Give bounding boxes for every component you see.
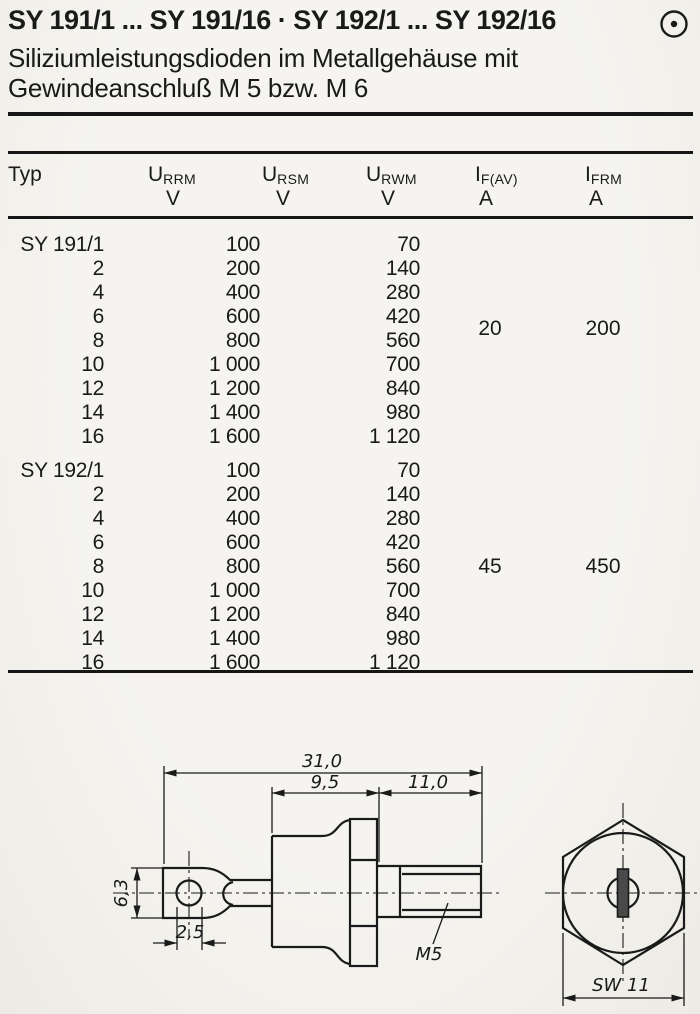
unit-if-av: A bbox=[479, 187, 493, 211]
cell-urwm: 140 bbox=[310, 257, 420, 281]
column-header-ifrm: IFRM bbox=[585, 163, 622, 187]
divider-rule-heavy bbox=[8, 112, 693, 116]
column-header-urrm: URRM bbox=[148, 163, 196, 187]
flange-circle bbox=[563, 833, 683, 953]
cell-urrm: 200 bbox=[150, 483, 260, 507]
table-row: 2200140 bbox=[8, 257, 692, 281]
cell-typ: 6 bbox=[8, 305, 104, 329]
cell-typ: 6 bbox=[8, 531, 104, 555]
cell-urwm: 980 bbox=[310, 627, 420, 651]
table-row: SY 191/110070 bbox=[8, 233, 692, 257]
column-header-typ: Typ bbox=[8, 163, 42, 187]
cell-urwm: 700 bbox=[310, 579, 420, 603]
table-row: 121 200840 bbox=[8, 603, 692, 627]
cell-urwm: 840 bbox=[310, 377, 420, 401]
cell-urwm: 1 120 bbox=[310, 425, 420, 449]
table-row: 2200140 bbox=[8, 483, 692, 507]
table-row: 161 6001 120 bbox=[8, 425, 692, 449]
cell-urrm: 400 bbox=[150, 507, 260, 531]
cell-urrm: 100 bbox=[150, 459, 260, 483]
solder-lug-outline bbox=[163, 868, 272, 918]
cell-urrm: 1 400 bbox=[150, 401, 260, 425]
table-row: SY 192/110070 bbox=[8, 459, 692, 483]
cell-urrm: 200 bbox=[150, 257, 260, 281]
cell-typ: 2 bbox=[8, 257, 104, 281]
cell-urrm: 1 600 bbox=[150, 651, 260, 675]
table-row: 4400280 bbox=[8, 507, 692, 531]
table-top-rule bbox=[8, 151, 693, 154]
cell-typ: SY 192/1 bbox=[8, 459, 104, 483]
cell-typ: 14 bbox=[8, 401, 104, 425]
dim-lug-height: 6,3 bbox=[111, 879, 132, 908]
cell-urwm: 280 bbox=[310, 281, 420, 305]
thread-label: M5 bbox=[416, 944, 443, 965]
circle-dot-icon bbox=[659, 9, 689, 39]
lug-hole bbox=[177, 881, 202, 906]
table-row: 141 400980 bbox=[8, 401, 692, 425]
cell-typ: SY 191/1 bbox=[8, 233, 104, 257]
dim-body-length: 9,5 bbox=[311, 772, 340, 793]
cell-urrm: 1 200 bbox=[150, 603, 260, 627]
cell-typ: 4 bbox=[8, 507, 104, 531]
cell-urrm: 600 bbox=[150, 531, 260, 555]
cell-urrm: 800 bbox=[150, 555, 260, 579]
lug-slot bbox=[618, 869, 629, 917]
cell-urwm: 70 bbox=[310, 233, 420, 257]
cell-urwm: 70 bbox=[310, 459, 420, 483]
cell-urrm: 1 600 bbox=[150, 425, 260, 449]
cell-typ: 10 bbox=[8, 579, 104, 603]
cell-typ: 10 bbox=[8, 353, 104, 377]
cell-urrm: 1 000 bbox=[150, 353, 260, 377]
table-row: 161 6001 120 bbox=[8, 651, 692, 675]
cell-typ: 14 bbox=[8, 627, 104, 651]
dimension-labels: 31,0 9,5 11,0 6,3 2,5 M5 SW 11 bbox=[111, 751, 650, 996]
cell-urwm: 560 bbox=[310, 555, 420, 579]
unit-urwm: V bbox=[381, 187, 395, 211]
table-row: 141 400980 bbox=[8, 627, 692, 651]
cell-typ: 8 bbox=[8, 555, 104, 579]
cell-typ: 16 bbox=[8, 425, 104, 449]
table-row: 101 000700 bbox=[8, 579, 692, 603]
cell-urwm: 700 bbox=[310, 353, 420, 377]
hex-flange-facets bbox=[350, 860, 377, 926]
cell-urrm: 1 400 bbox=[150, 627, 260, 651]
stud-end-circle bbox=[608, 878, 639, 909]
table-row: 4400280 bbox=[8, 281, 692, 305]
cell-urwm: 420 bbox=[310, 305, 420, 329]
cell-urwm: 840 bbox=[310, 603, 420, 627]
centerlines bbox=[113, 803, 700, 983]
cell-typ: 12 bbox=[8, 603, 104, 627]
page-subtitle-line1: Siliziumleistungsdioden im Metallgehäuse… bbox=[8, 43, 518, 74]
cell-if-av-sy192: 45 bbox=[462, 555, 518, 579]
cell-urwm: 420 bbox=[310, 531, 420, 555]
cell-urwm: 280 bbox=[310, 507, 420, 531]
cell-urrm: 1 000 bbox=[150, 579, 260, 603]
cell-urwm: 1 120 bbox=[310, 651, 420, 675]
diode-body bbox=[272, 820, 350, 964]
cell-typ: 4 bbox=[8, 281, 104, 305]
threaded-stud bbox=[377, 866, 481, 917]
dim-wrench-size: SW 11 bbox=[592, 975, 650, 996]
column-header-ursm: URSM bbox=[262, 163, 309, 187]
column-header-urwm: URWM bbox=[366, 163, 417, 187]
cell-urrm: 600 bbox=[150, 305, 260, 329]
diode-top-view bbox=[563, 820, 684, 965]
cell-urwm: 140 bbox=[310, 483, 420, 507]
cell-urrm: 1 200 bbox=[150, 377, 260, 401]
table-row: 121 200840 bbox=[8, 377, 692, 401]
unit-ifrm: A bbox=[589, 187, 603, 211]
dimension-lines bbox=[131, 766, 684, 1006]
lug-fork-detail bbox=[223, 882, 233, 905]
cell-typ: 12 bbox=[8, 377, 104, 401]
cell-urwm: 980 bbox=[310, 401, 420, 425]
cell-urrm: 400 bbox=[150, 281, 260, 305]
cell-typ: 2 bbox=[8, 483, 104, 507]
cell-urwm: 560 bbox=[310, 329, 420, 353]
page-subtitle-line2: Gewindeanschluß M 5 bzw. M 6 bbox=[8, 73, 368, 104]
cell-typ: 16 bbox=[8, 651, 104, 675]
cell-if-av-sy191: 20 bbox=[462, 317, 518, 341]
table-header-rule bbox=[8, 216, 693, 219]
table-row: 6600420 bbox=[8, 531, 692, 555]
table-section-sy191: SY 191/110070220014044002806600420880056… bbox=[8, 233, 692, 449]
cell-ifrm-sy192: 450 bbox=[575, 555, 631, 579]
unit-ursm: V bbox=[276, 187, 290, 211]
dim-overall-length: 31,0 bbox=[302, 751, 342, 772]
diode-side-view bbox=[163, 819, 481, 966]
dimension-drawing: 31,0 9,5 11,0 6,3 2,5 M5 SW 11 bbox=[0, 700, 700, 1014]
cell-typ: 8 bbox=[8, 329, 104, 353]
cell-ifrm-sy191: 200 bbox=[575, 317, 631, 341]
hex-flange bbox=[350, 819, 377, 966]
page-title: SY 191/1 ... SY 191/16 · SY 192/1 ... SY… bbox=[8, 5, 668, 36]
dim-stud-length: 11,0 bbox=[408, 772, 448, 793]
column-header-if-av: IF(AV) bbox=[475, 163, 518, 187]
cell-urrm: 100 bbox=[150, 233, 260, 257]
unit-urrm: V bbox=[166, 187, 180, 211]
dim-hole-diameter: 2,5 bbox=[176, 922, 205, 943]
table-row: 101 000700 bbox=[8, 353, 692, 377]
thread-leader-line bbox=[433, 903, 448, 944]
cell-urrm: 800 bbox=[150, 329, 260, 353]
hex-outline bbox=[563, 820, 684, 965]
